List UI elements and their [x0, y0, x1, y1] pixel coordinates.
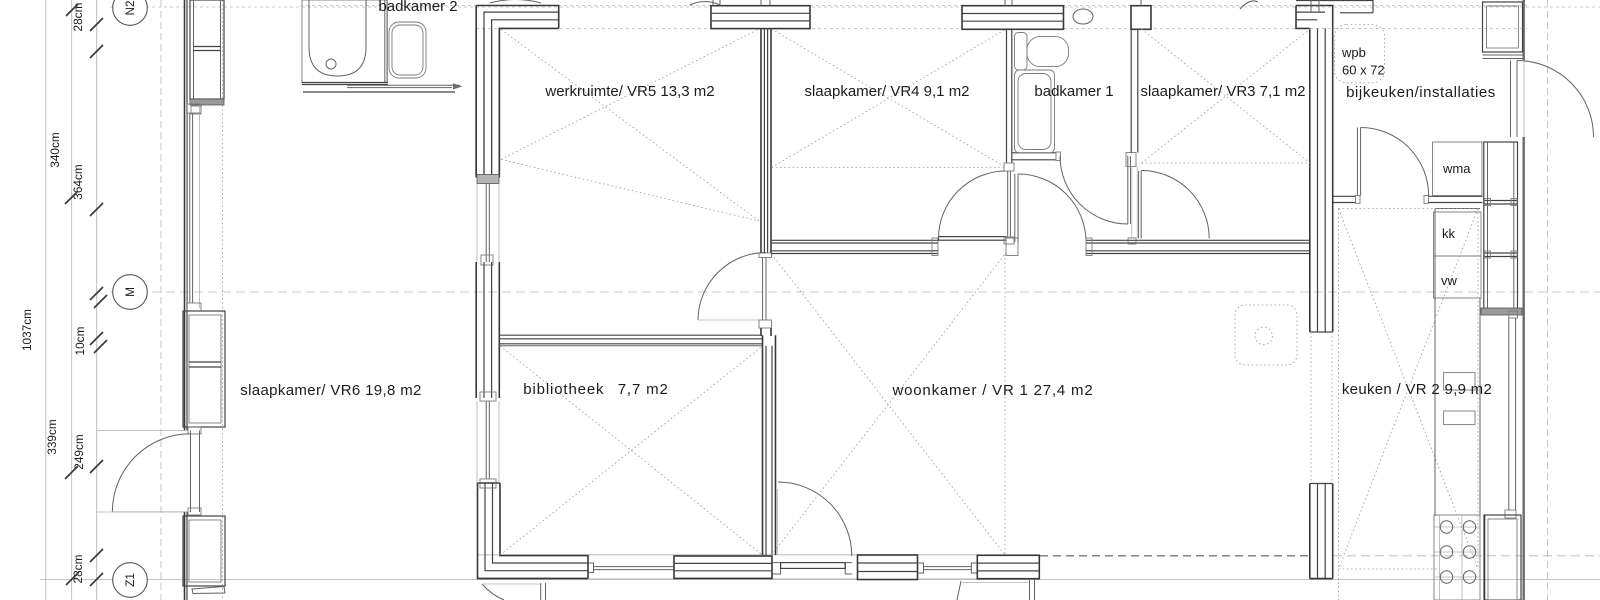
svg-text:364cm: 364cm — [71, 164, 85, 200]
svg-text:slaapkamer/ VR6 19,8 m2: slaapkamer/ VR6 19,8 m2 — [240, 382, 421, 399]
svg-text:slaapkamer/ VR4 9,1 m2: slaapkamer/ VR4 9,1 m2 — [804, 83, 969, 100]
svg-text:28cm: 28cm — [71, 2, 85, 31]
svg-text:Z1: Z1 — [123, 573, 137, 587]
svg-text:badkamer 2: badkamer 2 — [378, 0, 457, 15]
svg-text:10cm: 10cm — [73, 326, 87, 355]
svg-text:M: M — [123, 287, 137, 297]
svg-text:slaapkamer/ VR3 7,1 m2: slaapkamer/ VR3 7,1 m2 — [1140, 83, 1305, 100]
svg-text:woonkamer / VR 1 27,4 m2: woonkamer / VR 1 27,4 m2 — [892, 382, 1094, 399]
svg-text:249cm: 249cm — [72, 434, 86, 470]
svg-text:werkruimte/ VR5 13,3 m2: werkruimte/ VR5 13,3 m2 — [544, 83, 714, 100]
svg-text:N2: N2 — [123, 0, 137, 15]
svg-text:wma: wma — [1442, 161, 1471, 176]
svg-text:1037cm: 1037cm — [20, 309, 34, 351]
svg-text:badkamer 1: badkamer 1 — [1034, 83, 1113, 100]
svg-text:vw: vw — [1441, 273, 1458, 288]
svg-text:bijkeuken/installaties: bijkeuken/installaties — [1346, 84, 1496, 101]
svg-text:keuken / VR 2 9,9 m2: keuken / VR 2 9,9 m2 — [1342, 381, 1492, 398]
svg-text:340cm: 340cm — [48, 132, 62, 168]
svg-text:339cm: 339cm — [45, 419, 59, 455]
svg-text:60 x 72: 60 x 72 — [1342, 63, 1385, 78]
svg-text:kk: kk — [1442, 226, 1456, 241]
svg-text:wpb: wpb — [1341, 45, 1366, 60]
svg-text:bibliotheek 7,7 m2: bibliotheek 7,7 m2 — [523, 381, 668, 398]
